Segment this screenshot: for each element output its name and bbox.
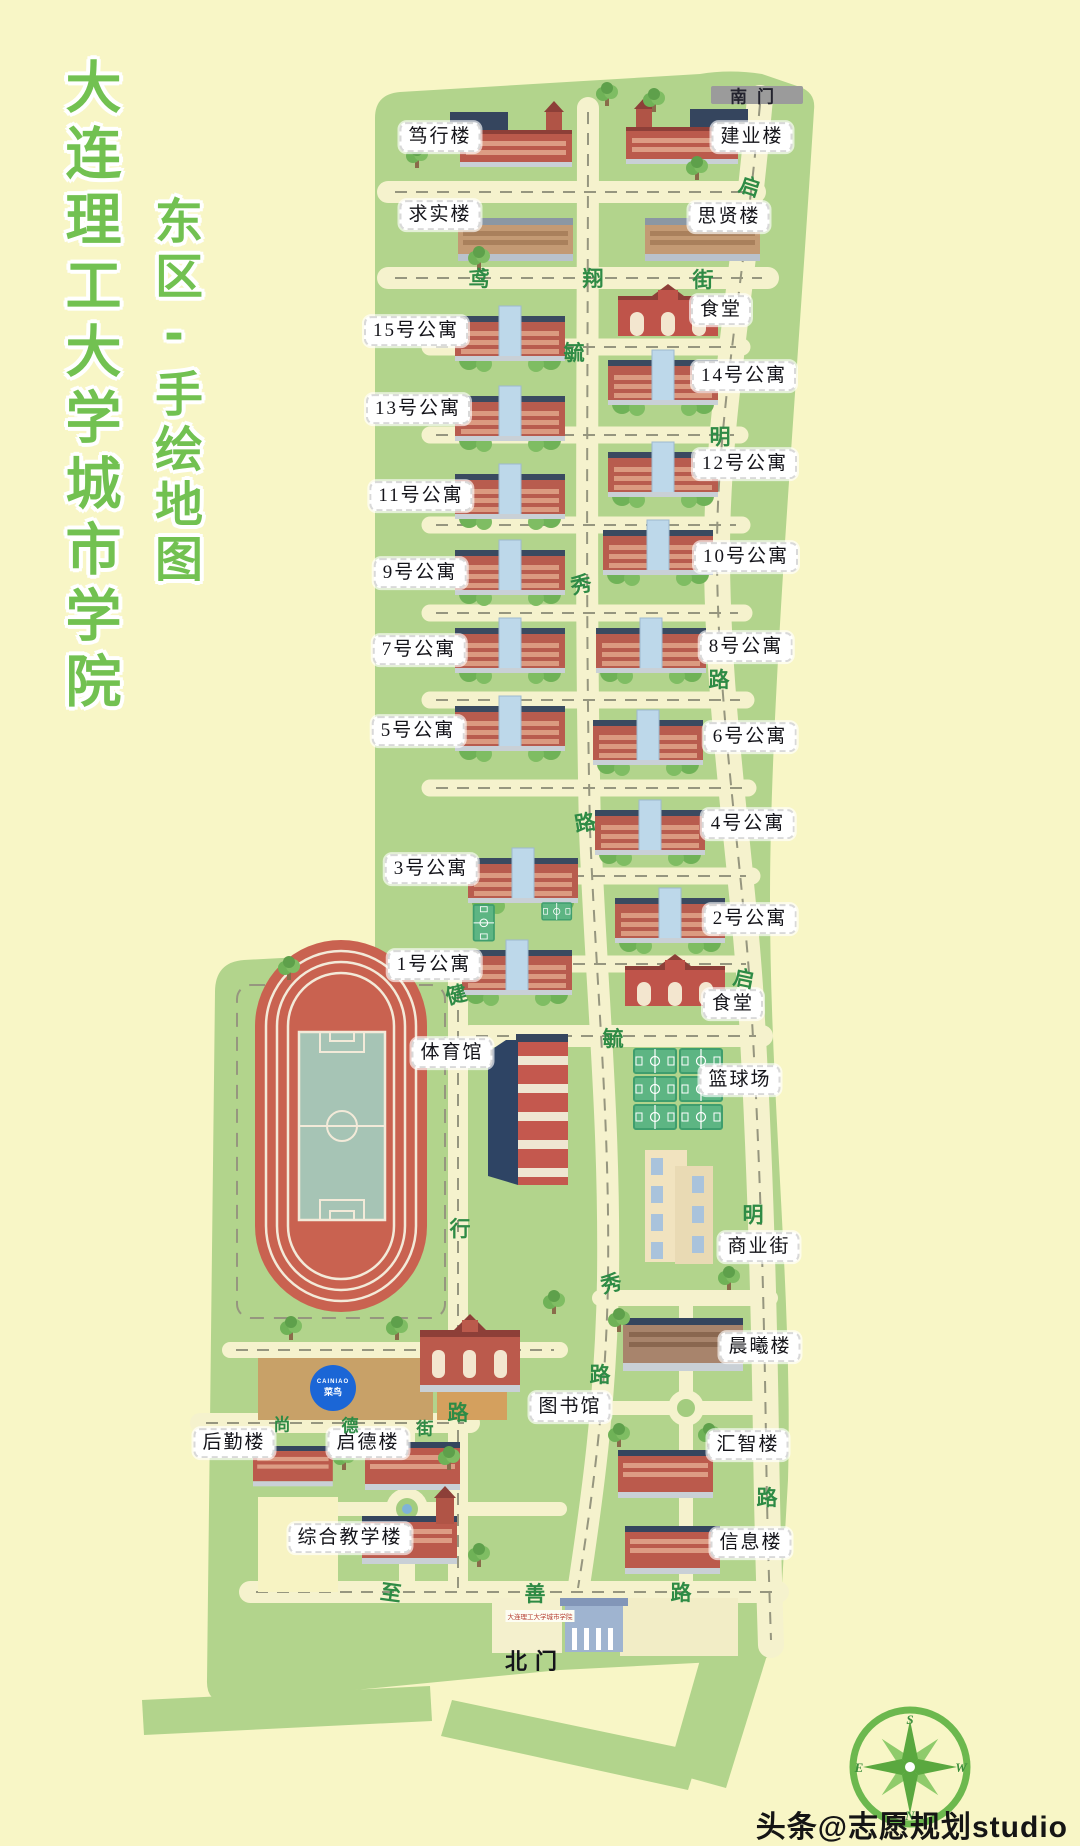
street-yuxiu-char3b: 路: [590, 1359, 611, 1389]
label-zonghe: 综合教学楼: [288, 1523, 411, 1553]
label-library: 图书馆: [529, 1392, 610, 1422]
street-qiming-char2b: 明: [743, 1199, 764, 1229]
street-shangde-char1: 尚: [274, 1411, 291, 1436]
street-jianxing-char3: 路: [448, 1397, 469, 1427]
label-apt1: 1号公寓: [388, 950, 481, 980]
huizhi-building-glyph: [618, 1450, 713, 1498]
label-basketball: 篮球场: [699, 1065, 780, 1095]
label-apt15: 15号公寓: [364, 316, 468, 346]
cainiao-kiosk: CAINIAO 菜鸟: [310, 1365, 356, 1411]
street-zhishan-char3: 路: [671, 1577, 692, 1607]
street-zhishan-char2: 善: [525, 1578, 546, 1608]
label-apt7: 7号公寓: [373, 635, 466, 665]
label-chenxi: 晨曦楼: [719, 1332, 800, 1362]
green-strip-corner: [668, 1652, 768, 1788]
street-shangde-char2: 德: [342, 1412, 359, 1437]
gym-building-glyph: [488, 1034, 568, 1185]
label-apt13: 13号公寓: [366, 394, 470, 424]
cainiao-name: 菜鸟: [324, 1385, 342, 1398]
label-houqin: 后勤楼: [193, 1428, 274, 1458]
compass-west-letter: W: [955, 1760, 968, 1775]
street-yuanxiang-char1: 鸢: [469, 263, 490, 293]
label-canteen-south: 食堂: [703, 989, 763, 1019]
label-apt14: 14号公寓: [692, 361, 796, 391]
label-apt12: 12号公寓: [693, 449, 797, 479]
athletic-track: [255, 940, 427, 1312]
street-yuxiu-char1: 毓: [564, 337, 585, 367]
label-duxing: 笃行楼: [399, 122, 480, 152]
xinxi-building-glyph: [625, 1526, 720, 1574]
street-qiming-char2: 明: [710, 421, 731, 451]
label-gym: 体育馆: [411, 1038, 492, 1068]
street-yuxiu-char1b: 毓: [603, 1023, 624, 1053]
mall-building-glyph: [645, 1150, 713, 1264]
campus-map: 大连理工大学城市学院 东区-手绘地图 南门 北门 大连理工大学城市学院 笃行楼 …: [0, 0, 1080, 1846]
label-apt8: 8号公寓: [700, 632, 793, 662]
label-apt3: 3号公寓: [385, 854, 478, 884]
label-apt4: 4号公寓: [702, 809, 795, 839]
street-qiming-char3b: 路: [757, 1482, 778, 1512]
label-apt6: 6号公寓: [704, 722, 797, 752]
street-zhishan-char1: 至: [379, 1576, 404, 1609]
compass-east-letter: E: [854, 1760, 864, 1775]
label-xinxi: 信息楼: [710, 1528, 791, 1558]
label-mall: 商业街: [718, 1232, 799, 1262]
watermark: 头条@志愿规划studio: [756, 1802, 1068, 1846]
label-apt5: 5号公寓: [372, 716, 465, 746]
label-huizhi: 汇智楼: [707, 1430, 788, 1460]
label-apt2: 2号公寓: [704, 904, 797, 934]
north-gate-sign: 大连理工大学城市学院: [506, 1610, 575, 1622]
street-qiming-char3: 路: [709, 664, 730, 694]
label-sixian: 思贤楼: [688, 202, 769, 232]
roundabout-chenxi: [668, 1390, 704, 1426]
map-subtitle: 东区-手绘地图: [150, 196, 198, 616]
street-shangde-char3: 街: [417, 1415, 434, 1440]
label-apt10: 10号公寓: [694, 542, 798, 572]
green-strip-left: [142, 1686, 432, 1735]
north-gate-label: 北门: [505, 1644, 565, 1676]
compass-south-letter: S: [906, 1712, 913, 1727]
label-apt11: 11号公寓: [369, 481, 472, 511]
soccer-field: [299, 1032, 385, 1220]
street-yuanxiang-char2: 翔: [583, 263, 604, 293]
label-jianye: 建业楼: [711, 122, 792, 152]
label-apt9: 9号公寓: [374, 558, 467, 588]
street-yuanxiang-char3: 街: [693, 264, 714, 294]
label-canteen-north: 食堂: [691, 295, 751, 325]
label-qide: 启德楼: [327, 1428, 408, 1458]
label-qiushi: 求实楼: [399, 200, 480, 230]
green-strip-right: [441, 1700, 700, 1790]
south-gate-label: 南门: [730, 83, 784, 108]
map-title: 大连理工大学城市学院: [60, 58, 116, 758]
street-jianxing-char2: 行: [450, 1213, 471, 1243]
